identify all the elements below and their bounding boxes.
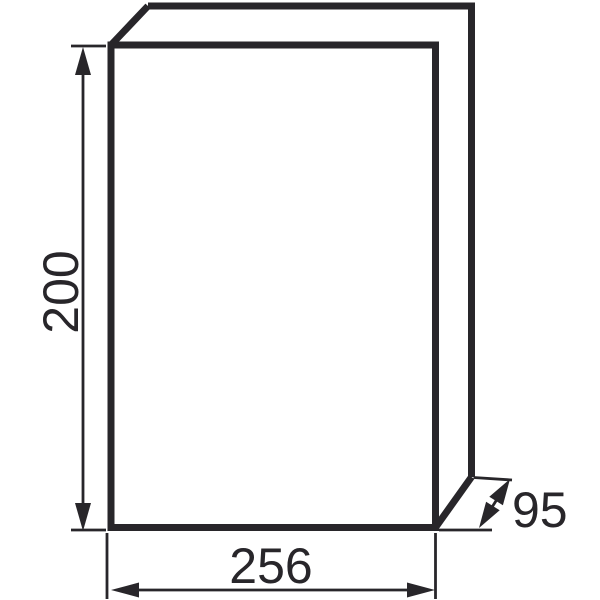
width-dimension: 256 bbox=[107, 533, 436, 599]
box-top-left-depth-edge bbox=[111, 6, 148, 45]
box-front-face bbox=[111, 45, 436, 528]
width-arrowhead-right-icon bbox=[407, 583, 435, 598]
height-dimension-label: 200 bbox=[33, 250, 89, 333]
technical-drawing-canvas: 200 256 95 bbox=[0, 0, 600, 600]
height-arrowhead-down-icon bbox=[75, 503, 91, 531]
box-bottom-right-depth-edge bbox=[436, 477, 472, 528]
box-back-panel-edge bbox=[148, 6, 472, 477]
width-dimension-label: 256 bbox=[229, 538, 312, 594]
height-arrowhead-up-icon bbox=[75, 47, 91, 75]
box-outline bbox=[111, 6, 472, 528]
depth-extension-line-top bbox=[474, 478, 513, 481]
width-arrowhead-left-icon bbox=[111, 583, 139, 598]
depth-dimension: 95 bbox=[439, 478, 568, 539]
depth-arrowhead-upper-icon bbox=[489, 479, 510, 505]
dimension-drawing: 200 256 95 bbox=[0, 0, 600, 600]
depth-dimension-label: 95 bbox=[512, 482, 568, 538]
depth-arrowhead-lower-icon bbox=[479, 502, 500, 528]
height-dimension: 200 bbox=[33, 46, 106, 531]
